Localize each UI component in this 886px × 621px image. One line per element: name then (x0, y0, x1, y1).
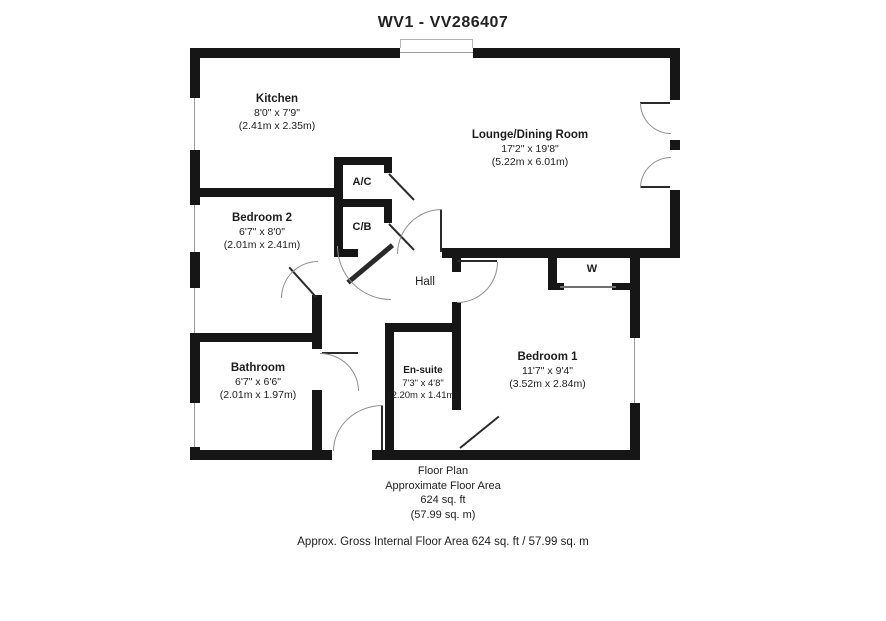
room-name: Kitchen (197, 93, 357, 107)
caption-line: Approximate Floor Area (0, 479, 886, 494)
room-name: En-suite (385, 364, 461, 378)
room-name: Bedroom 1 (465, 351, 630, 365)
wall (196, 188, 342, 197)
caption-line: 624 sq. ft (0, 493, 886, 508)
label-airing-cupboard: A/C (344, 176, 380, 188)
room-label-ensuite: En-suite 7'3" x 4'8" (2.20m x 1.41m) (385, 364, 461, 402)
door-arc (397, 209, 442, 254)
wall (384, 207, 392, 223)
window-glass-line (194, 98, 195, 150)
window (630, 338, 640, 403)
window-glass-line (194, 403, 195, 447)
wall (442, 248, 680, 258)
label-cupboard: C/B (344, 221, 380, 233)
caption-line: (57.99 sq. m) (0, 508, 886, 523)
window (400, 48, 473, 58)
room-dim-imperial: 7'3" x 4'8" (385, 378, 461, 390)
wall (190, 450, 332, 460)
window-glass-line (634, 338, 635, 403)
caption-line: Floor Plan (0, 464, 886, 479)
room-dim-metric: (2.01m x 1.97m) (178, 389, 338, 403)
room-dim-imperial: 6'7" x 8'0" (182, 226, 342, 240)
room-dim-imperial: 11'7" x 9'4" (465, 365, 630, 379)
room-name: Bedroom 2 (182, 212, 342, 226)
room-name: Bathroom (178, 362, 338, 376)
door-opening (332, 450, 372, 460)
gross-area-disclaimer: Approx. Gross Internal Floor Area 624 sq… (0, 536, 886, 548)
room-dim-metric: (5.22m x 6.01m) (430, 156, 630, 170)
label-wardrobe: W (570, 263, 614, 275)
wall (670, 140, 680, 150)
wall (452, 302, 461, 323)
window (190, 288, 200, 333)
door-arc (337, 246, 391, 300)
door-arc (457, 262, 498, 303)
wall (372, 450, 640, 460)
wall (196, 333, 322, 342)
room-label-bedroom2: Bedroom 2 6'7" x 8'0" (2.01m x 2.41m) (182, 212, 342, 253)
door-leaf (459, 416, 499, 449)
room-dim-imperial: 8'0" x 7'9" (197, 107, 357, 121)
window (190, 403, 200, 447)
window-glass-line (400, 52, 473, 53)
wall (385, 323, 461, 332)
room-label-bathroom: Bathroom 6'7" x 6'6" (2.01m x 1.97m) (178, 362, 338, 403)
room-label-kitchen: Kitchen 8'0" x 7'9" (2.41m x 2.35m) (197, 93, 357, 134)
room-dim-metric: (3.52m x 2.84m) (465, 378, 630, 392)
room-dim-metric: (2.20m x 1.41m) (385, 390, 461, 402)
door-arc (640, 157, 671, 188)
door-arc (640, 103, 671, 134)
floor-plan-canvas: WV1 - VV286407 (0, 0, 886, 621)
room-dim-metric: (2.41m x 2.35m) (197, 120, 357, 134)
door-arc (281, 261, 318, 298)
door-leaf (388, 173, 414, 200)
window-glass-line (194, 288, 195, 333)
wall (384, 157, 392, 173)
room-name: Lounge/Dining Room (430, 129, 630, 143)
sliding-door-line (560, 286, 616, 288)
wall (312, 333, 322, 349)
label-hall: Hall (395, 276, 455, 288)
room-label-lounge: Lounge/Dining Room 17'2" x 19'8" (5.22m … (430, 129, 630, 170)
floor-plan-caption: Floor Plan Approximate Floor Area 624 sq… (0, 464, 886, 522)
room-dim-imperial: 17'2" x 19'8" (430, 143, 630, 157)
room-label-bedroom1: Bedroom 1 11'7" x 9'4" (3.52m x 2.84m) (465, 351, 630, 392)
plan-title: WV1 - VV286407 (0, 14, 886, 32)
door-arc (333, 405, 383, 451)
room-dim-imperial: 6'7" x 6'6" (178, 376, 338, 390)
wall (334, 199, 392, 207)
room-dim-metric: (2.01m x 2.41m) (182, 239, 342, 253)
